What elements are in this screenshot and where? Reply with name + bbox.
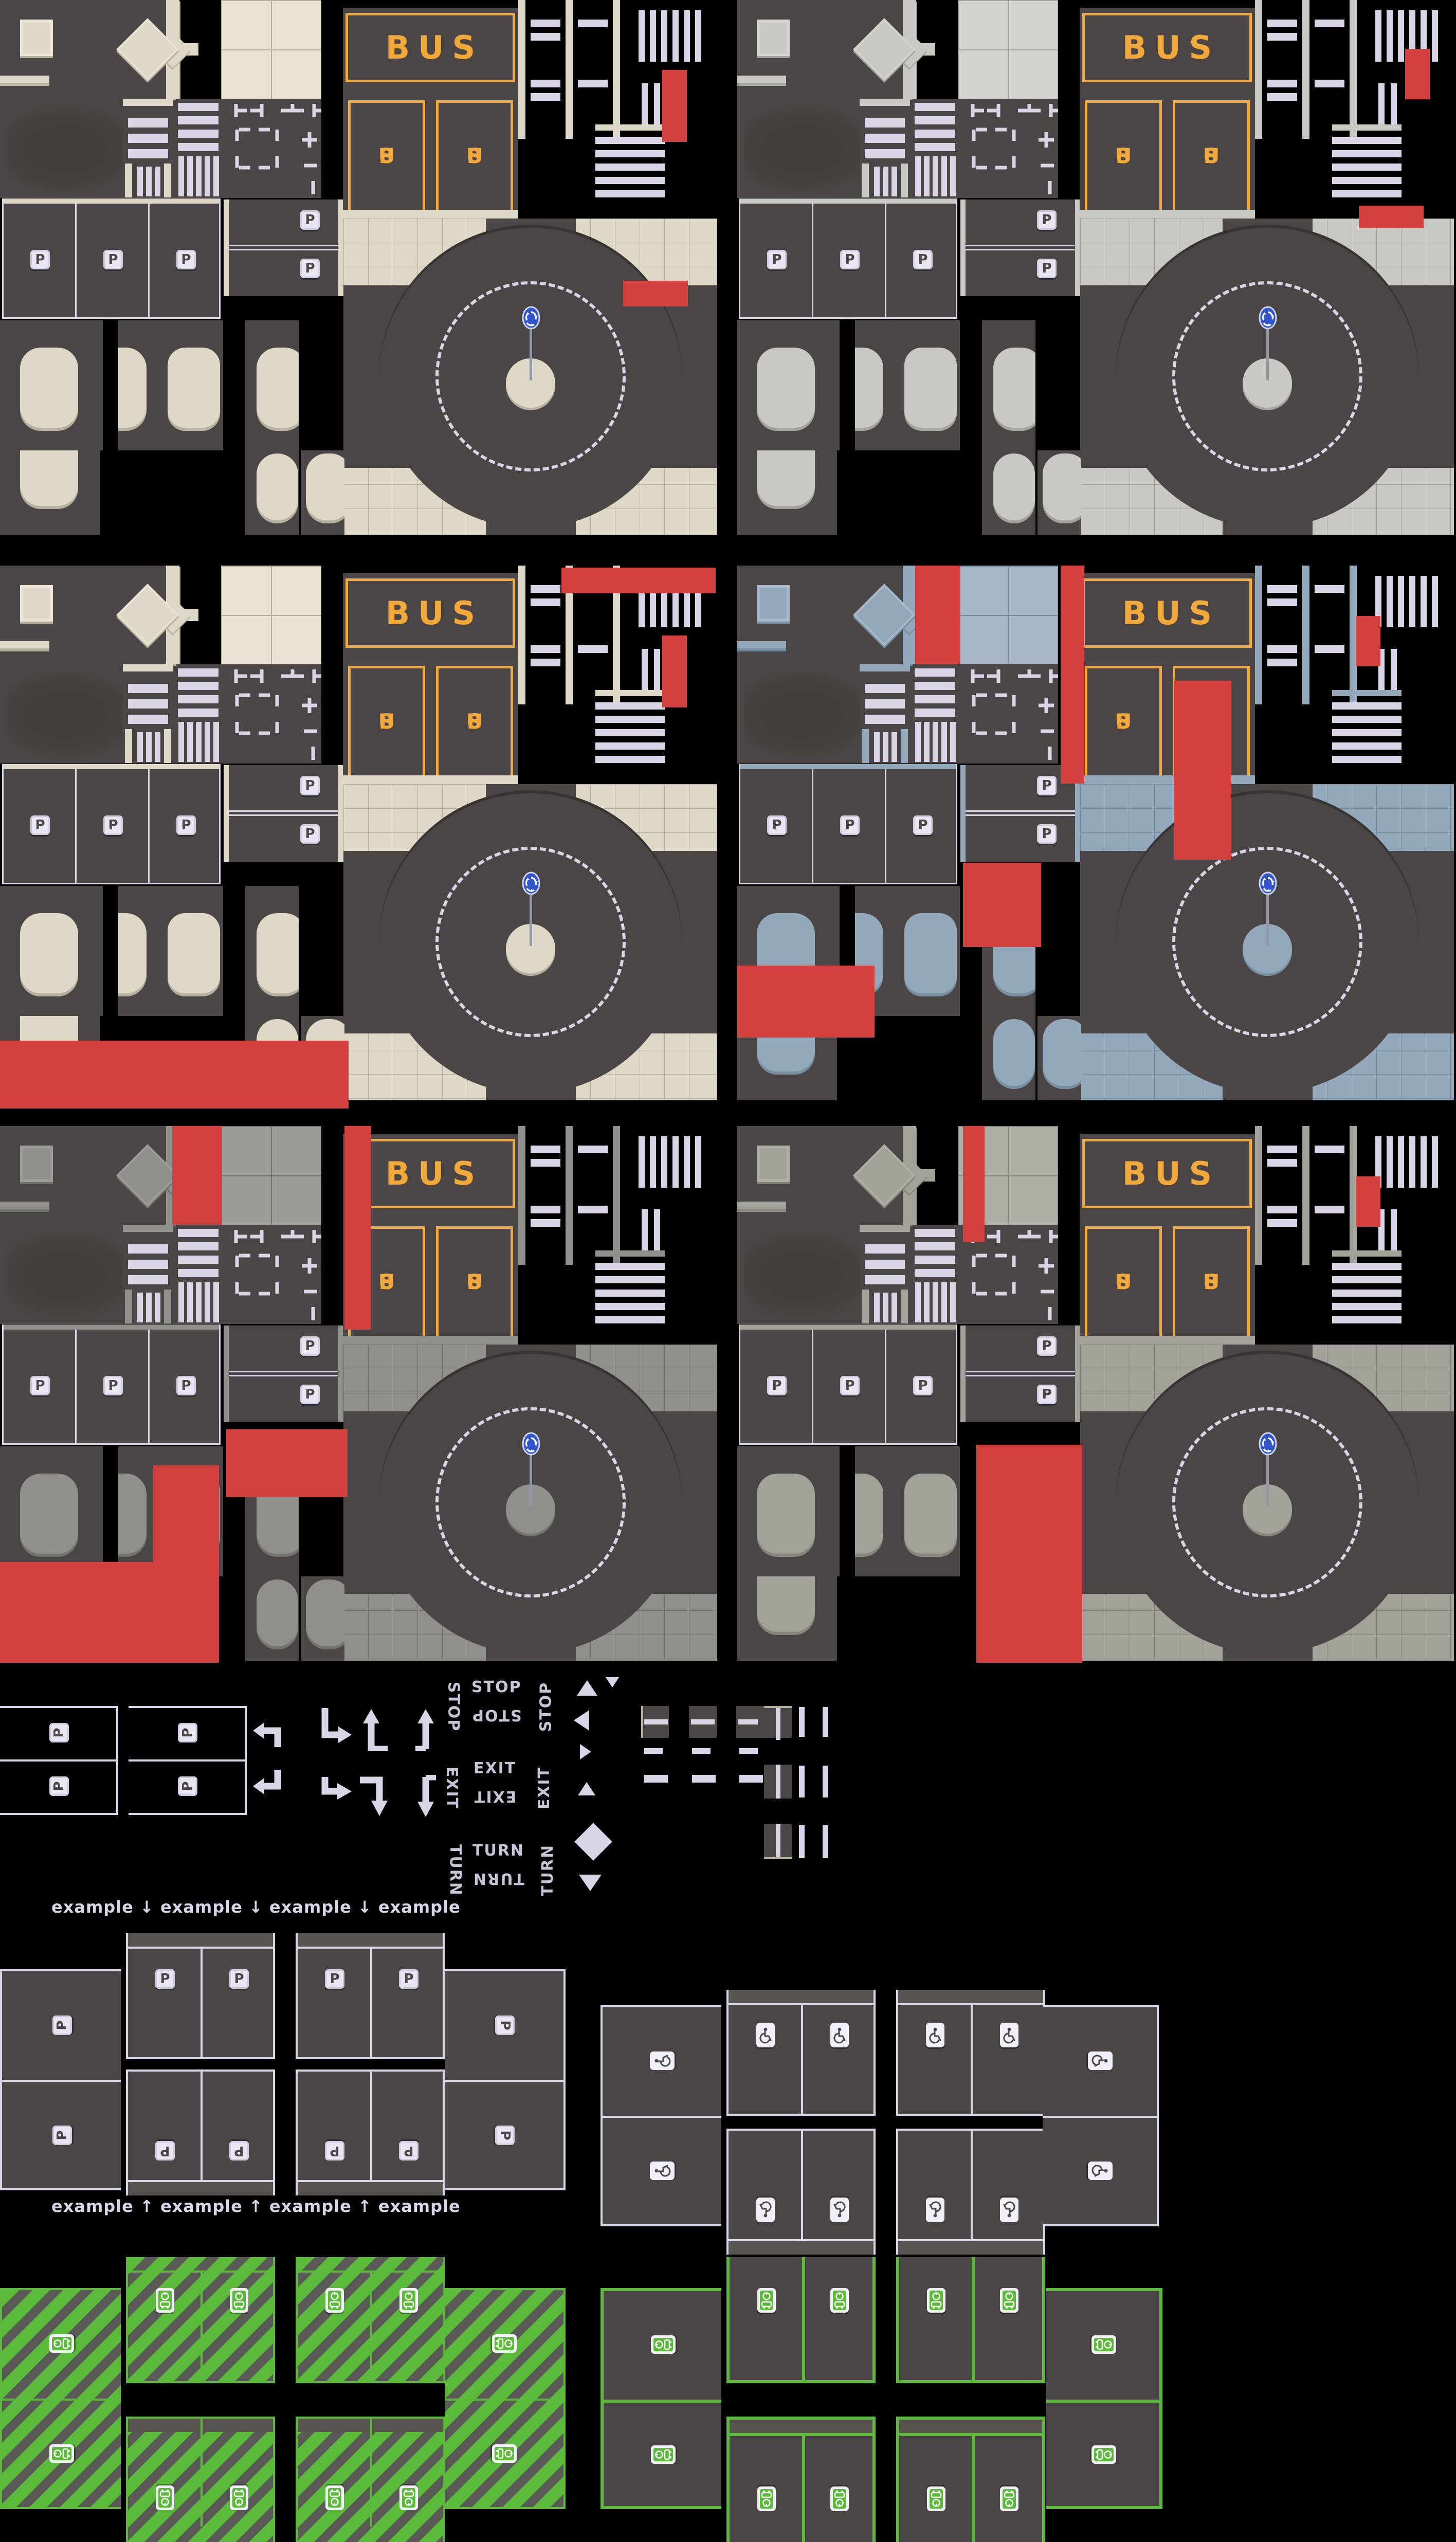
parking-p-badge: P (325, 2141, 344, 2160)
ev-parking-striped-left (0, 2288, 121, 2509)
example-caption-down: example ↓ example ↓ example ↓ example (51, 1897, 461, 1917)
wheelchair-icon (653, 2164, 671, 2177)
ev-charging-badge (156, 2288, 174, 2313)
ev-parking-outline-bottom (896, 2417, 1045, 2542)
parking-example-bottom: P P (296, 2069, 445, 2195)
wheelchair-icon (929, 2201, 942, 2219)
parking-p-badge: P (155, 1969, 175, 1989)
wheelchair-icon (759, 2026, 772, 2044)
ev-charging-badge (757, 2288, 776, 2313)
wheelchair-icon (1091, 2054, 1109, 2067)
ev-charging-badge (49, 2444, 74, 2463)
ev-charging-badge (156, 2485, 174, 2510)
ev-car-charging-icon (494, 2446, 515, 2461)
ev-parking-striped-bottom (126, 2417, 275, 2542)
ev-car-charging-icon (158, 2487, 172, 2508)
ev-car-charging-icon (929, 2290, 943, 2311)
wheelchair-icon (1091, 2164, 1109, 2177)
parking-example-right: P P (445, 1969, 566, 2190)
parking-p-badge: P (399, 2141, 418, 2160)
ev-car-charging-icon (832, 2290, 847, 2311)
parking-example-section: example ↓ example ↓ example ↓ example ex… (0, 0, 1456, 2542)
ev-charging-badge (1000, 2288, 1018, 2313)
handicap-badge (830, 2198, 849, 2222)
ev-car-charging-icon (51, 2336, 72, 2351)
ev-charging-badge (230, 2485, 248, 2510)
ev-charging-badge (927, 2288, 945, 2313)
handicap-badge (756, 2023, 775, 2047)
handicap-badge (650, 2162, 675, 2180)
ev-charging-badge (399, 2485, 418, 2510)
ev-car-charging-icon (759, 2489, 774, 2509)
ev-car-charging-icon (402, 2487, 416, 2508)
ev-car-charging-icon (232, 2487, 246, 2508)
ev-charging-badge (399, 2288, 418, 2313)
ev-car-charging-icon (327, 2487, 342, 2508)
handicap-badge (926, 2023, 944, 2047)
ev-car-charging-icon (494, 2336, 515, 2351)
ev-charging-badge (830, 2288, 849, 2313)
ev-charging-badge (49, 2334, 74, 2353)
handicap-badge (1088, 2162, 1113, 2180)
handicap-parking-example-bottom (726, 2129, 876, 2255)
ev-charging-badge (1091, 2335, 1116, 2354)
ev-charging-badge (651, 2445, 676, 2464)
ev-car-charging-icon (1094, 2447, 1114, 2462)
ev-car-charging-icon (232, 2290, 246, 2311)
handicap-badge (1000, 2198, 1018, 2222)
parking-p-badge: P (325, 1969, 344, 1989)
ev-charging-badge (651, 2335, 676, 2354)
ev-car-charging-icon (1094, 2337, 1114, 2352)
parking-p-badge: P (495, 2126, 515, 2145)
ev-charging-badge (830, 2486, 849, 2511)
parking-example-left: P P (0, 1969, 121, 2190)
example-caption-up: example ↑ example ↑ example ↑ example (51, 2196, 461, 2216)
parking-p-badge: P (155, 2141, 175, 2160)
ev-parking-outline-top (726, 2257, 876, 2383)
ev-charging-badge (492, 2444, 517, 2463)
parking-p-badge: P (229, 1969, 249, 1989)
ev-car-charging-icon (832, 2489, 847, 2509)
ev-parking-striped-right (445, 2288, 566, 2509)
handicap-badge (1000, 2023, 1018, 2047)
ev-parking-striped-top (296, 2257, 445, 2383)
parking-p-badge: P (52, 2016, 72, 2035)
ev-charging-badge (325, 2288, 344, 2313)
handicap-parking-example-left (600, 2005, 721, 2226)
ev-parking-outline-right (1046, 2288, 1162, 2509)
ev-parking-striped-bottom (296, 2417, 445, 2542)
handicap-badge (756, 2198, 775, 2222)
handicap-badge (926, 2198, 944, 2222)
parking-p-badge: P (399, 1969, 418, 1989)
ev-charging-badge (1000, 2486, 1018, 2511)
ev-charging-badge (757, 2486, 776, 2511)
ev-car-charging-icon (402, 2290, 416, 2311)
ev-charging-badge (1091, 2445, 1116, 2464)
ev-charging-badge (230, 2288, 248, 2313)
wheelchair-icon (1003, 2026, 1016, 2044)
ev-parking-outline-bottom (726, 2417, 876, 2542)
ev-car-charging-icon (653, 2447, 674, 2462)
ev-car-charging-icon (158, 2290, 172, 2311)
ev-car-charging-icon (759, 2290, 774, 2311)
ev-car-charging-icon (1002, 2489, 1016, 2509)
ev-charging-badge (325, 2485, 344, 2510)
handicap-parking-example-top (896, 1990, 1045, 2116)
handicap-parking-example-bottom (896, 2129, 1045, 2255)
ev-charging-badge (492, 2334, 517, 2353)
ev-parking-outline-left (600, 2288, 721, 2509)
wheelchair-icon (759, 2201, 772, 2219)
wheelchair-icon (653, 2054, 671, 2067)
parking-example-top: P P (296, 1933, 445, 2059)
ev-parking-striped-top (126, 2257, 275, 2383)
handicap-badge (1088, 2051, 1113, 2070)
wheelchair-icon (833, 2201, 846, 2219)
handicap-badge (830, 2023, 849, 2047)
wheelchair-icon (1003, 2201, 1016, 2219)
wheelchair-icon (833, 2026, 846, 2044)
handicap-parking-example-right (1043, 2005, 1159, 2226)
ev-car-charging-icon (327, 2290, 342, 2311)
parking-p-badge: P (52, 2126, 72, 2145)
parking-example-bottom: P P (126, 2069, 275, 2195)
tileset-spritesheet: P P P P P BUS BUS BUS (0, 0, 1456, 2542)
parking-p-badge: P (495, 2016, 515, 2035)
ev-charging-badge (927, 2486, 945, 2511)
parking-example-top: P P (126, 1933, 275, 2059)
ev-car-charging-icon (1002, 2290, 1016, 2311)
handicap-parking-example-top (726, 1990, 876, 2116)
ev-parking-outline-top (896, 2257, 1045, 2383)
ev-car-charging-icon (51, 2446, 72, 2461)
wheelchair-icon (929, 2026, 942, 2044)
ev-car-charging-icon (929, 2489, 943, 2509)
ev-car-charging-icon (653, 2337, 674, 2352)
handicap-badge (650, 2051, 675, 2070)
parking-p-badge: P (229, 2141, 249, 2160)
